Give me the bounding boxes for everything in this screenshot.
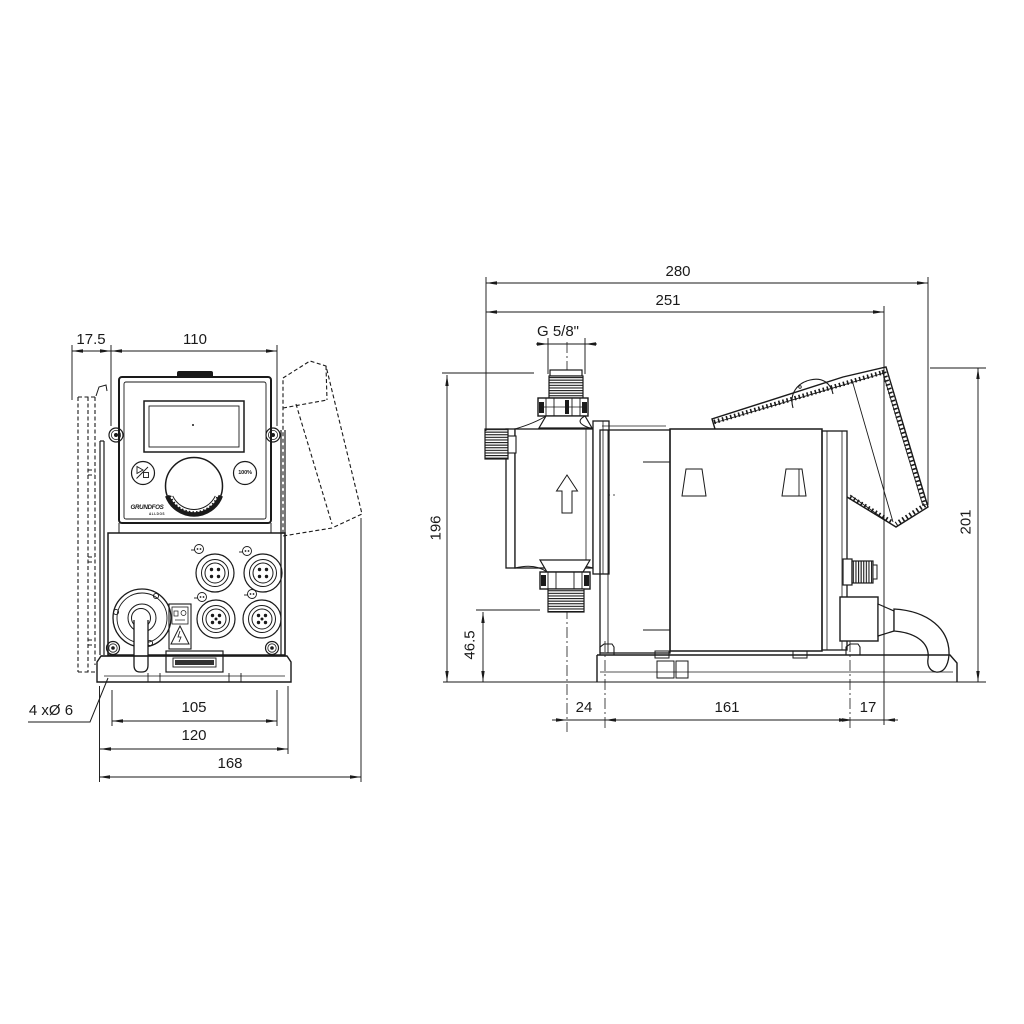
tilted-cube-projection-dashed xyxy=(283,361,362,536)
front-view xyxy=(28,345,362,782)
dim-wall-offset: 17.5 xyxy=(76,332,105,347)
dim-body-depth: 251 xyxy=(655,293,680,308)
body-side-walls xyxy=(100,430,285,655)
label-mounting-holes: 4 xØ 6 xyxy=(29,703,73,718)
side-base-plate xyxy=(597,644,957,682)
dimensional-drawing: 17.5 110 105 120 168 4 xØ 6 280 251 G 5/… xyxy=(0,0,1024,1024)
grundfos-logo-sub: ALLDOS xyxy=(149,512,165,516)
warning-label xyxy=(169,604,191,649)
full-capacity-button-label: 100% xyxy=(238,470,252,476)
power-cable xyxy=(134,620,148,672)
bracket-hook xyxy=(96,385,107,396)
cube-hatch-bands xyxy=(714,372,925,524)
click-wheel-knob[interactable] xyxy=(166,458,223,515)
dim-panel-width: 110 xyxy=(183,332,207,347)
dim-17: 17 xyxy=(860,700,877,715)
socket[interactable] xyxy=(197,600,235,638)
warning-triangle-icon xyxy=(171,626,189,644)
grundfos-logo: GRUNDFOS xyxy=(130,505,163,511)
dosing-head xyxy=(485,416,609,574)
pump-body xyxy=(600,426,847,658)
dim-plate-width: 120 xyxy=(181,728,206,743)
vent-knob[interactable] xyxy=(485,429,508,459)
dim-overall-depth: 280 xyxy=(665,264,690,279)
dim-hole-spacing-front: 105 xyxy=(181,700,206,715)
mains-cable xyxy=(894,609,949,672)
discharge-connection xyxy=(538,370,592,428)
dim-161: 161 xyxy=(714,700,739,715)
cube-screws xyxy=(109,428,280,442)
dim-height-201: 201 xyxy=(959,509,974,534)
panel-screws xyxy=(107,642,279,655)
start-stop-icon xyxy=(137,467,149,479)
side-view xyxy=(442,277,986,732)
wall-plate-dashed xyxy=(78,397,95,672)
dim-height-196: 196 xyxy=(429,515,444,540)
connection-panel xyxy=(107,523,286,672)
suction-connection xyxy=(540,560,590,612)
dim-overall-width: 168 xyxy=(217,756,242,771)
connector-sockets xyxy=(196,554,282,638)
front-base-plate xyxy=(97,651,291,682)
socket-symbol-icons xyxy=(191,545,257,602)
display xyxy=(144,401,244,452)
socket[interactable] xyxy=(244,554,282,592)
socket[interactable] xyxy=(243,600,281,638)
tilted-control-cube xyxy=(712,367,928,527)
cable-flange xyxy=(113,589,171,672)
dim-24: 24 xyxy=(576,700,593,715)
control-cube xyxy=(109,371,280,523)
socket[interactable] xyxy=(196,554,234,592)
start-stop-button[interactable] xyxy=(132,462,155,485)
dim-thread: G 5/8" xyxy=(537,324,579,339)
dim-height-46-5: 46.5 xyxy=(463,630,478,659)
